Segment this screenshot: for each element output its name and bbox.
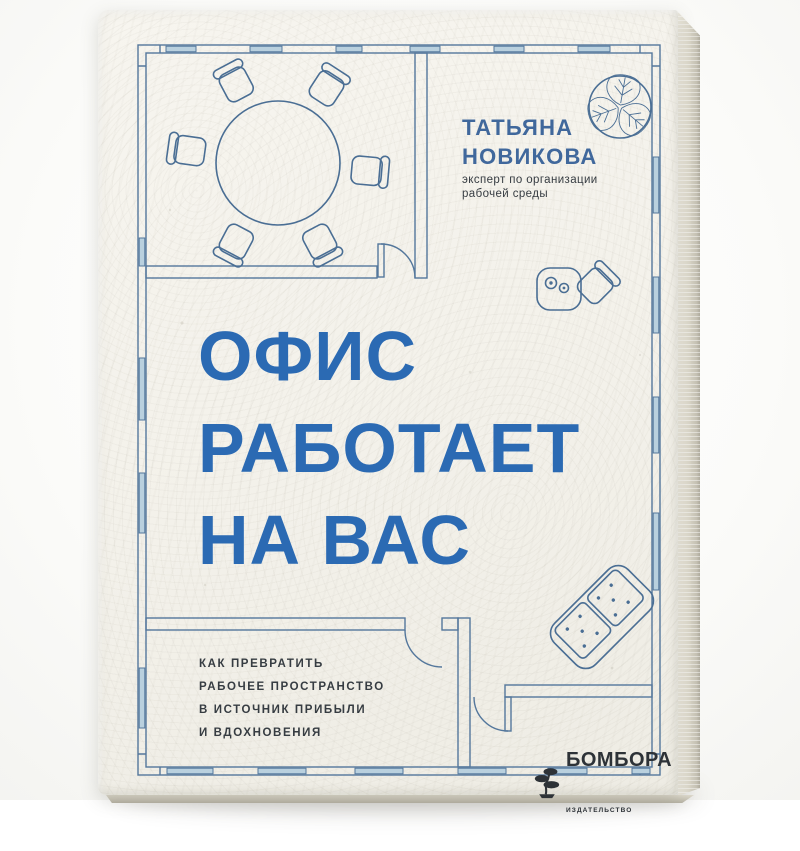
book-tagline: КАК ПРЕВРАТИТЬРАБОЧЕЕ ПРОСТРАНСТВОВ ИСТО… <box>199 653 385 745</box>
publisher-logo: БОМБОРА ИЗДАТЕЛЬСТВО <box>534 714 672 851</box>
book-title: ОФИСРАБОТАЕТНА ВАС <box>198 310 580 586</box>
publisher-descriptor: ИЗДАТЕЛЬСТВО <box>566 807 672 815</box>
book-product-photo[interactable]: ТАТЬЯНАНОВИКОВА эксперт по организациира… <box>0 0 800 800</box>
author-name: ТАТЬЯНАНОВИКОВА <box>462 113 598 171</box>
author-role: эксперт по организациирабочей среды <box>462 173 598 201</box>
publisher-bonsai-icon <box>534 765 560 801</box>
publisher-name: БОМБОРА <box>566 750 672 770</box>
page-block-edge-right <box>678 12 700 796</box>
